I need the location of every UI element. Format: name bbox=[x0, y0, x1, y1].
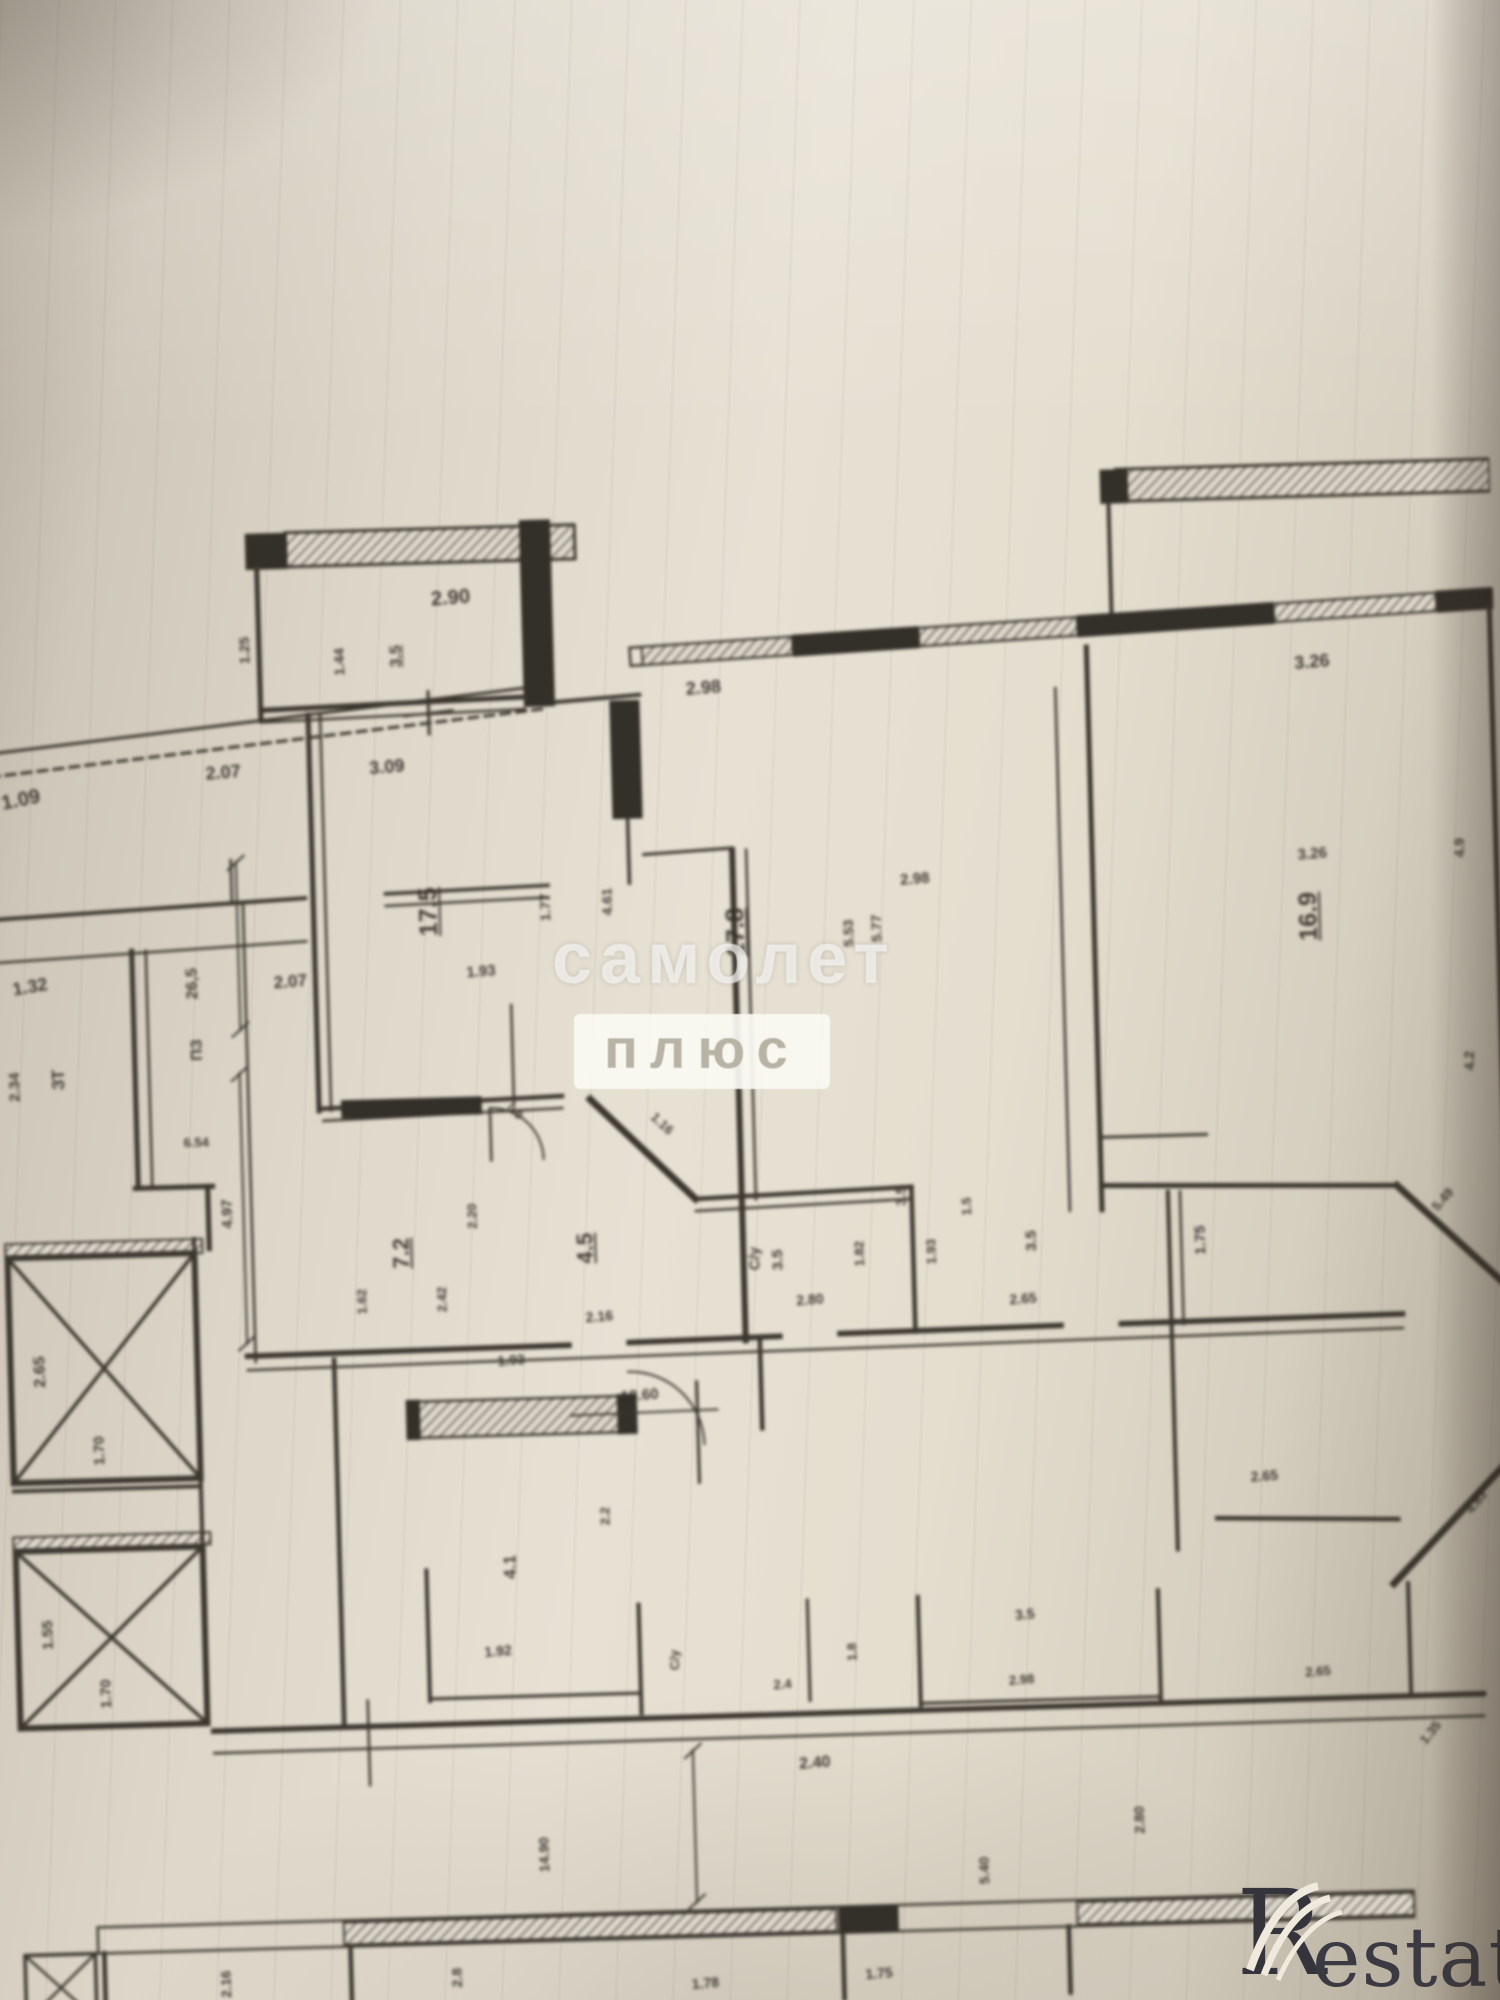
dimension-label: 2.42 bbox=[434, 1287, 450, 1313]
dimension-label: 2.20 bbox=[464, 1203, 480, 1229]
dimension-label: 2.98 bbox=[900, 869, 931, 888]
dimension-label: 2.2 bbox=[597, 1507, 613, 1526]
dimension-label: 1.62 bbox=[354, 1289, 370, 1315]
dimension-label: 1.77 bbox=[536, 894, 553, 922]
floorplan-layer: 1.092.903.51.251.442.073.092.983.261.322… bbox=[0, 0, 1500, 2000]
dimension-label: 4.9 bbox=[1451, 838, 1468, 858]
dimension-label: 2.80 bbox=[796, 1290, 825, 1308]
dimension-label: 2.8 bbox=[449, 1968, 466, 1988]
dimension-label: 1.75 bbox=[1191, 1225, 1209, 1255]
dimension-label: 5.40 bbox=[975, 1857, 992, 1885]
dimension-label: 3.5 bbox=[1014, 1605, 1035, 1623]
dimension-label: 2.65 bbox=[1009, 1289, 1038, 1307]
dimension-label: 1.78 bbox=[691, 1974, 720, 1992]
dimension-label: 4.2 bbox=[1461, 1051, 1478, 1071]
dimension-label: 6.54 bbox=[183, 1135, 209, 1151]
dimension-label: 1.8 bbox=[844, 1643, 860, 1662]
dimension-label: 3.09 bbox=[369, 755, 406, 779]
dimension-label: 1.70 bbox=[90, 1436, 108, 1466]
floor-plan-photo: 1.092.903.51.251.442.073.092.983.261.322… bbox=[0, 0, 1500, 2000]
dimension-label: 2.40 bbox=[799, 1753, 832, 1774]
dimension-label: 1.75 bbox=[865, 1964, 894, 1982]
dimension-label: 2.16 bbox=[585, 1307, 614, 1325]
dimension-label: 4.97 bbox=[219, 1199, 237, 1229]
dimension-label: 2.65 bbox=[1305, 1663, 1332, 1680]
restate-logo-text: estate bbox=[1312, 1911, 1500, 2000]
dimension-label: 1.82 bbox=[851, 1241, 867, 1267]
restate-logo-graphic: R estate bbox=[1236, 1874, 1500, 2000]
dimension-label: 14.90 bbox=[535, 1837, 552, 1873]
dimension-label: 2.98 bbox=[685, 676, 722, 700]
dimension-label: 1.70 bbox=[97, 1679, 115, 1709]
dimension-label: 4.1 bbox=[500, 1555, 521, 1579]
dimension-label: 1.55 bbox=[39, 1620, 57, 1650]
dimension-label: 2.98 bbox=[1008, 1671, 1035, 1688]
dimension-label: 1.44 bbox=[330, 648, 347, 676]
dimension-label: С/у bbox=[746, 1247, 764, 1271]
dimension-label: 1.92 bbox=[484, 1642, 513, 1660]
dimension-label: 1.25 bbox=[235, 637, 252, 665]
dimension-label: ЗТ bbox=[49, 1069, 70, 1090]
dimension-label: 18.60 bbox=[620, 1385, 659, 1405]
dimension-label: 2.65 bbox=[1250, 1466, 1279, 1484]
dimension-label: ПЗ bbox=[188, 1039, 207, 1061]
dimension-label: 4.61 bbox=[598, 888, 615, 916]
dimension-label: 2.4 bbox=[773, 1676, 792, 1692]
dimension-label: 5.77 bbox=[868, 915, 885, 943]
dimension-label: 3.5 bbox=[892, 1186, 909, 1206]
dimension-label: 2.16 bbox=[217, 1970, 234, 1998]
dimension-label: 1.5 bbox=[958, 1197, 974, 1216]
floorplan-walls-graphic bbox=[0, 0, 1500, 2000]
dimension-label: 2.90 bbox=[430, 585, 471, 611]
dimension-label: 3.5 bbox=[1023, 1230, 1041, 1251]
dimension-label: 2.65 bbox=[31, 1356, 50, 1388]
dimension-label: 17.8 bbox=[721, 907, 751, 957]
dimension-label: 3.5 bbox=[388, 645, 407, 668]
dimension-label: 2.80 bbox=[1131, 1806, 1148, 1834]
dimension-label: 3.26 bbox=[1297, 844, 1328, 863]
dimension-label: 1.93 bbox=[466, 962, 497, 981]
dimension-label: 2.34 bbox=[6, 1072, 24, 1102]
dimension-label: 2.07 bbox=[205, 761, 242, 785]
dimension-label: 16.9 bbox=[1294, 891, 1324, 941]
dimension-label: 5.53 bbox=[840, 919, 857, 947]
dimension-label: 3.5 bbox=[769, 1249, 787, 1270]
dimension-label: 2.07 bbox=[273, 971, 308, 994]
dimension-label: 1.93 bbox=[497, 1351, 526, 1369]
dimension-label: 26,5 bbox=[183, 968, 202, 1000]
dimension-label: 17.5 bbox=[414, 887, 444, 937]
dimension-label: 4.5 bbox=[572, 1233, 599, 1264]
dimension-label: 1.93 bbox=[923, 1239, 939, 1265]
dimension-label: С/у bbox=[666, 1650, 682, 1671]
dimension-label: 3.26 bbox=[1294, 650, 1331, 674]
dimension-label: 7.2 bbox=[388, 1238, 415, 1269]
restate-logo: R estate bbox=[1236, 1874, 1500, 2000]
